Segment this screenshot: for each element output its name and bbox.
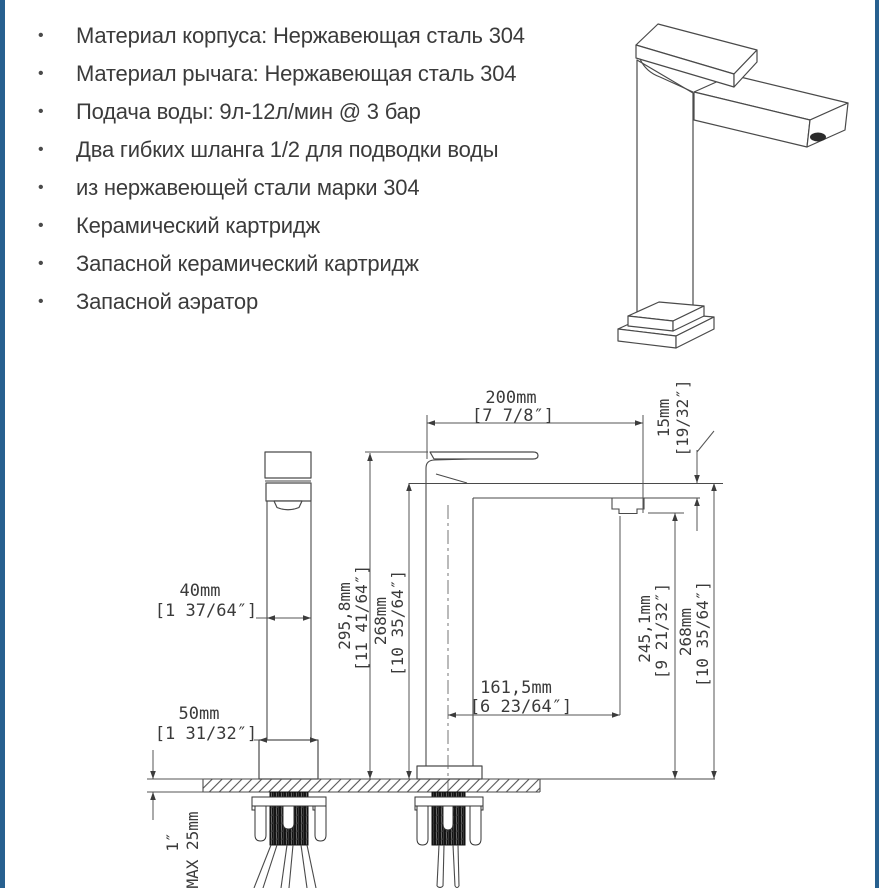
- mounting-hardware-right: [415, 792, 483, 888]
- hoses-left: [254, 845, 316, 888]
- dim-label: [11 41/64″]: [352, 565, 371, 671]
- dim-label: 40mm: [180, 581, 221, 601]
- faucet-drawings: 200mm [7 7/8″] 15mm [19/32″] 40mm [1 37/…: [0, 0, 879, 888]
- dim-spout-tip: 15mm [19/32″]: [654, 379, 714, 531]
- dimension-drawing: 200mm [7 7/8″] 15mm [19/32″] 40mm [1 37/…: [147, 379, 723, 888]
- dim-spout-height-left: 268mm [10 35/64″]: [371, 483, 412, 779]
- hoses-right: [437, 845, 459, 888]
- dim-label: [7 7/8″]: [472, 406, 554, 426]
- dim-label: 200mm: [485, 388, 536, 408]
- dim-label: [6 23/64″]: [470, 697, 572, 717]
- dim-label: [10 35/64″]: [388, 570, 407, 676]
- dim-body-width: 40mm [1 37/64″]: [155, 581, 311, 621]
- aerator-tip: [810, 133, 826, 142]
- aerator: [612, 498, 644, 514]
- dim-spout-reach: 200mm [7 7/8″]: [427, 388, 643, 513]
- spec-sheet-page: Материал корпуса: Нержавеющая сталь 304 …: [0, 0, 879, 888]
- dim-label: MAX 25mm: [183, 811, 202, 888]
- dim-label: 50mm: [179, 704, 220, 724]
- dim-label: 1″: [163, 832, 182, 851]
- side-view: [259, 452, 318, 779]
- dim-spout-height-right: 268mm [10 35/64″]: [676, 483, 717, 779]
- dim-label: 161,5mm: [480, 678, 552, 698]
- dim-label: [1 37/64″]: [155, 601, 257, 621]
- dim-counter-thickness: 1″ MAX 25mm: [147, 750, 204, 888]
- dim-label: [1 31/32″]: [155, 724, 257, 744]
- dim-label: [10 35/64″]: [693, 581, 712, 687]
- mounting-hardware-left: [252, 792, 326, 888]
- dim-label: 15mm: [654, 399, 673, 438]
- dim-label: [9 21/32″]: [652, 583, 671, 679]
- handle-lever: [430, 452, 538, 459]
- dim-label: [19/32″]: [673, 379, 692, 456]
- isometric-faucet-render: [618, 24, 848, 348]
- dim-base-width: 50mm [1 31/32″]: [155, 704, 318, 744]
- dim-aerator-offset: 161,5mm [6 23/64″]: [448, 516, 620, 718]
- countertop-section: [203, 779, 715, 792]
